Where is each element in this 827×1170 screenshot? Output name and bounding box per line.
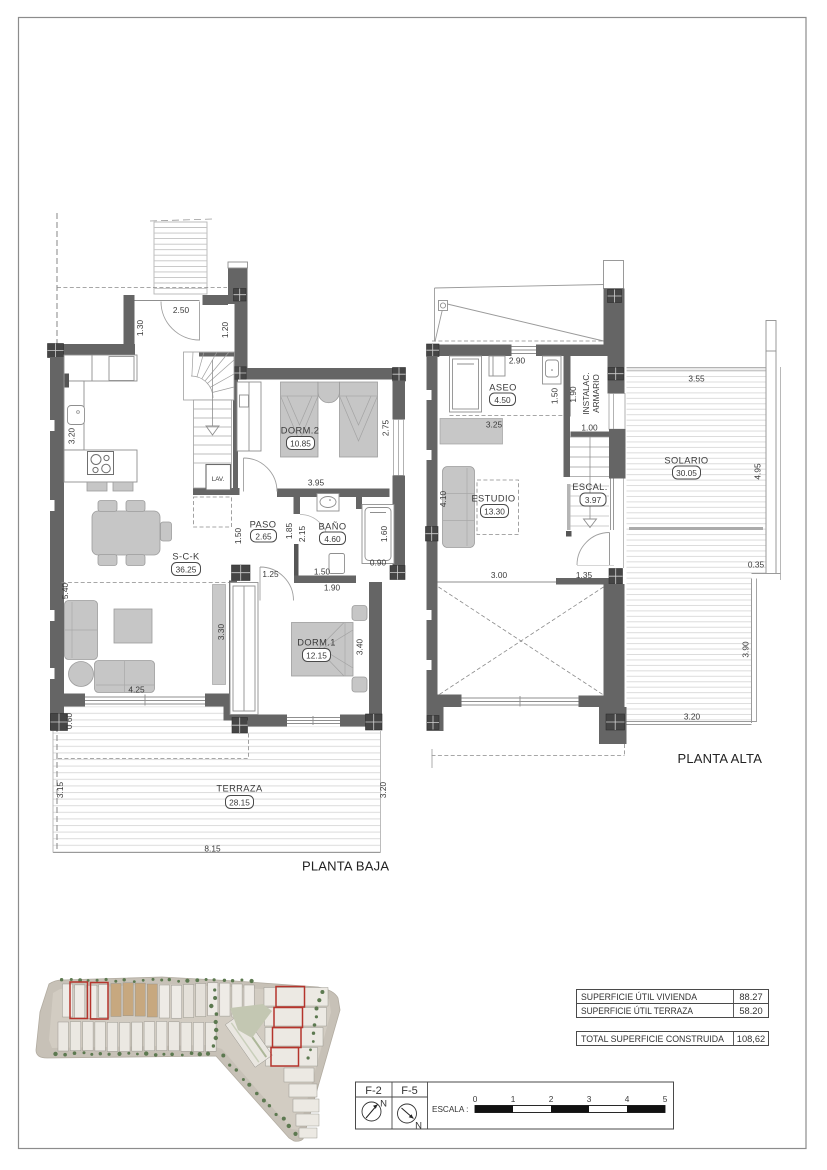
svg-text:3.25: 3.25 [486,420,503,430]
svg-text:5: 5 [663,1094,668,1104]
svg-text:3.00: 3.00 [491,570,508,580]
svg-text:INSTALAC.: INSTALAC. [581,372,591,414]
svg-text:1.50: 1.50 [314,567,331,577]
svg-text:2.90: 2.90 [509,356,526,366]
svg-text:1.25: 1.25 [262,569,279,579]
svg-text:1.85: 1.85 [284,523,294,540]
svg-text:3.15: 3.15 [55,782,65,799]
svg-text:LAV.: LAV. [212,476,225,483]
svg-text:10.85: 10.85 [290,439,311,449]
svg-text:1.20: 1.20 [220,322,230,339]
svg-text:1.50: 1.50 [550,388,560,405]
svg-text:108,62: 108,62 [737,1034,765,1044]
svg-text:1.35: 1.35 [576,570,593,580]
svg-text:3.20: 3.20 [378,782,388,799]
svg-text:S-C-K: S-C-K [172,552,200,562]
svg-text:ESTUDIO: ESTUDIO [471,494,515,504]
svg-text:SOLARIO: SOLARIO [664,456,708,466]
svg-text:TOTAL SUPERFICIE CONSTRUIDA: TOTAL SUPERFICIE CONSTRUIDA [581,1034,725,1044]
svg-text:PLANTA BAJA: PLANTA BAJA [302,859,389,874]
svg-text:3.90: 3.90 [741,641,751,658]
svg-text:4.10: 4.10 [438,491,448,508]
svg-text:TERRAZA: TERRAZA [216,784,263,794]
svg-text:N: N [380,1099,387,1110]
svg-text:1.30: 1.30 [135,320,145,337]
svg-text:4.50: 4.50 [494,395,511,405]
svg-text:PASO: PASO [250,520,277,530]
svg-text:2.75: 2.75 [381,420,391,437]
svg-text:ARMARIO: ARMARIO [591,374,601,413]
svg-text:SUPERFICIE ÚTIL VIVIENDA: SUPERFICIE ÚTIL VIVIENDA [581,992,698,1002]
svg-text:3.30: 3.30 [216,624,226,641]
svg-text:36.25: 36.25 [176,565,197,575]
svg-text:1: 1 [511,1094,516,1104]
svg-text:2.65: 2.65 [255,532,272,542]
svg-text:8.15: 8.15 [204,844,221,854]
svg-text:4.95: 4.95 [753,463,763,480]
svg-text:DORM.1: DORM.1 [297,638,336,648]
svg-text:F-5: F-5 [401,1085,418,1097]
svg-text:PLANTA ALTA: PLANTA ALTA [678,751,763,766]
svg-text:ESCALA :: ESCALA : [432,1105,468,1114]
svg-text:0.35: 0.35 [748,560,765,570]
svg-text:1.90: 1.90 [324,583,341,593]
svg-text:1.00: 1.00 [581,423,598,433]
svg-text:2: 2 [549,1094,554,1104]
svg-text:F-2: F-2 [365,1085,382,1097]
svg-text:3.55: 3.55 [688,374,705,384]
svg-text:5.40: 5.40 [60,583,70,600]
svg-text:0: 0 [473,1094,478,1104]
svg-text:ESCAL.: ESCAL. [572,482,607,492]
svg-text:88.27: 88.27 [739,992,762,1002]
svg-text:1.50: 1.50 [233,528,243,545]
svg-text:DORM.2: DORM.2 [281,426,320,436]
svg-text:30.05: 30.05 [676,468,697,478]
svg-text:SUPERFICIE ÚTIL TERRAZA: SUPERFICIE ÚTIL TERRAZA [581,1006,694,1016]
svg-text:BAÑO: BAÑO [319,522,347,532]
svg-text:3: 3 [587,1094,592,1104]
svg-text:12.15: 12.15 [306,651,327,661]
svg-text:3.95: 3.95 [308,478,325,488]
svg-text:2.50: 2.50 [173,305,190,315]
svg-text:N: N [415,1121,422,1132]
svg-text:3.40: 3.40 [355,639,365,656]
svg-text:2.15: 2.15 [297,526,307,543]
svg-text:0.90: 0.90 [370,558,387,568]
svg-text:4: 4 [625,1094,630,1104]
svg-text:4.25: 4.25 [128,685,145,695]
svg-text:4.60: 4.60 [324,534,341,544]
svg-text:3.20: 3.20 [67,428,77,445]
svg-text:13.30: 13.30 [484,507,505,517]
svg-text:28.15: 28.15 [229,798,250,808]
svg-text:3.20: 3.20 [684,712,701,722]
svg-text:1.60: 1.60 [379,526,389,543]
svg-text:3.97: 3.97 [585,495,602,505]
svg-text:ASEO: ASEO [489,383,516,393]
svg-text:0.60: 0.60 [64,713,74,730]
svg-text:1.90: 1.90 [568,386,578,403]
svg-text:58.20: 58.20 [739,1006,762,1016]
